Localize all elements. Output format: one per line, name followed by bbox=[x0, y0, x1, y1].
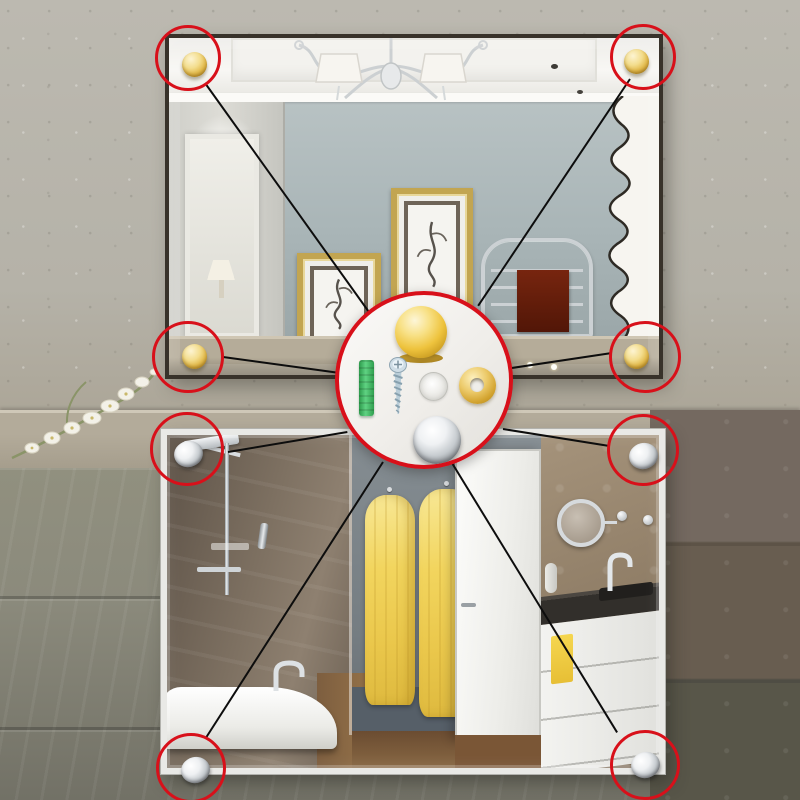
corner-marker-circle bbox=[155, 25, 221, 91]
clear-gasket bbox=[419, 372, 448, 401]
corner-marker-circle bbox=[610, 24, 676, 90]
corner-marker-circle bbox=[150, 412, 224, 486]
green-wall-plug bbox=[359, 360, 374, 416]
corner-marker-circle bbox=[607, 414, 679, 486]
corner-marker-circle bbox=[609, 321, 681, 393]
brass-ring-washer bbox=[459, 367, 496, 404]
bottom-mirror-reflection bbox=[167, 435, 659, 768]
gold-dome-cap bbox=[395, 306, 447, 358]
chrome-dome-cap bbox=[413, 416, 461, 464]
mirror-bevel-highlight bbox=[167, 435, 659, 768]
product-photo bbox=[0, 0, 800, 800]
bottom-mirror bbox=[161, 429, 665, 774]
washer-hole bbox=[470, 378, 484, 392]
hardware-callout-circle bbox=[335, 291, 513, 469]
corner-marker-circle bbox=[610, 730, 680, 800]
corner-marker-circle bbox=[156, 733, 226, 800]
orchid-spray bbox=[6, 358, 166, 470]
corner-marker-circle bbox=[152, 321, 224, 393]
mounting-screw bbox=[387, 357, 409, 419]
